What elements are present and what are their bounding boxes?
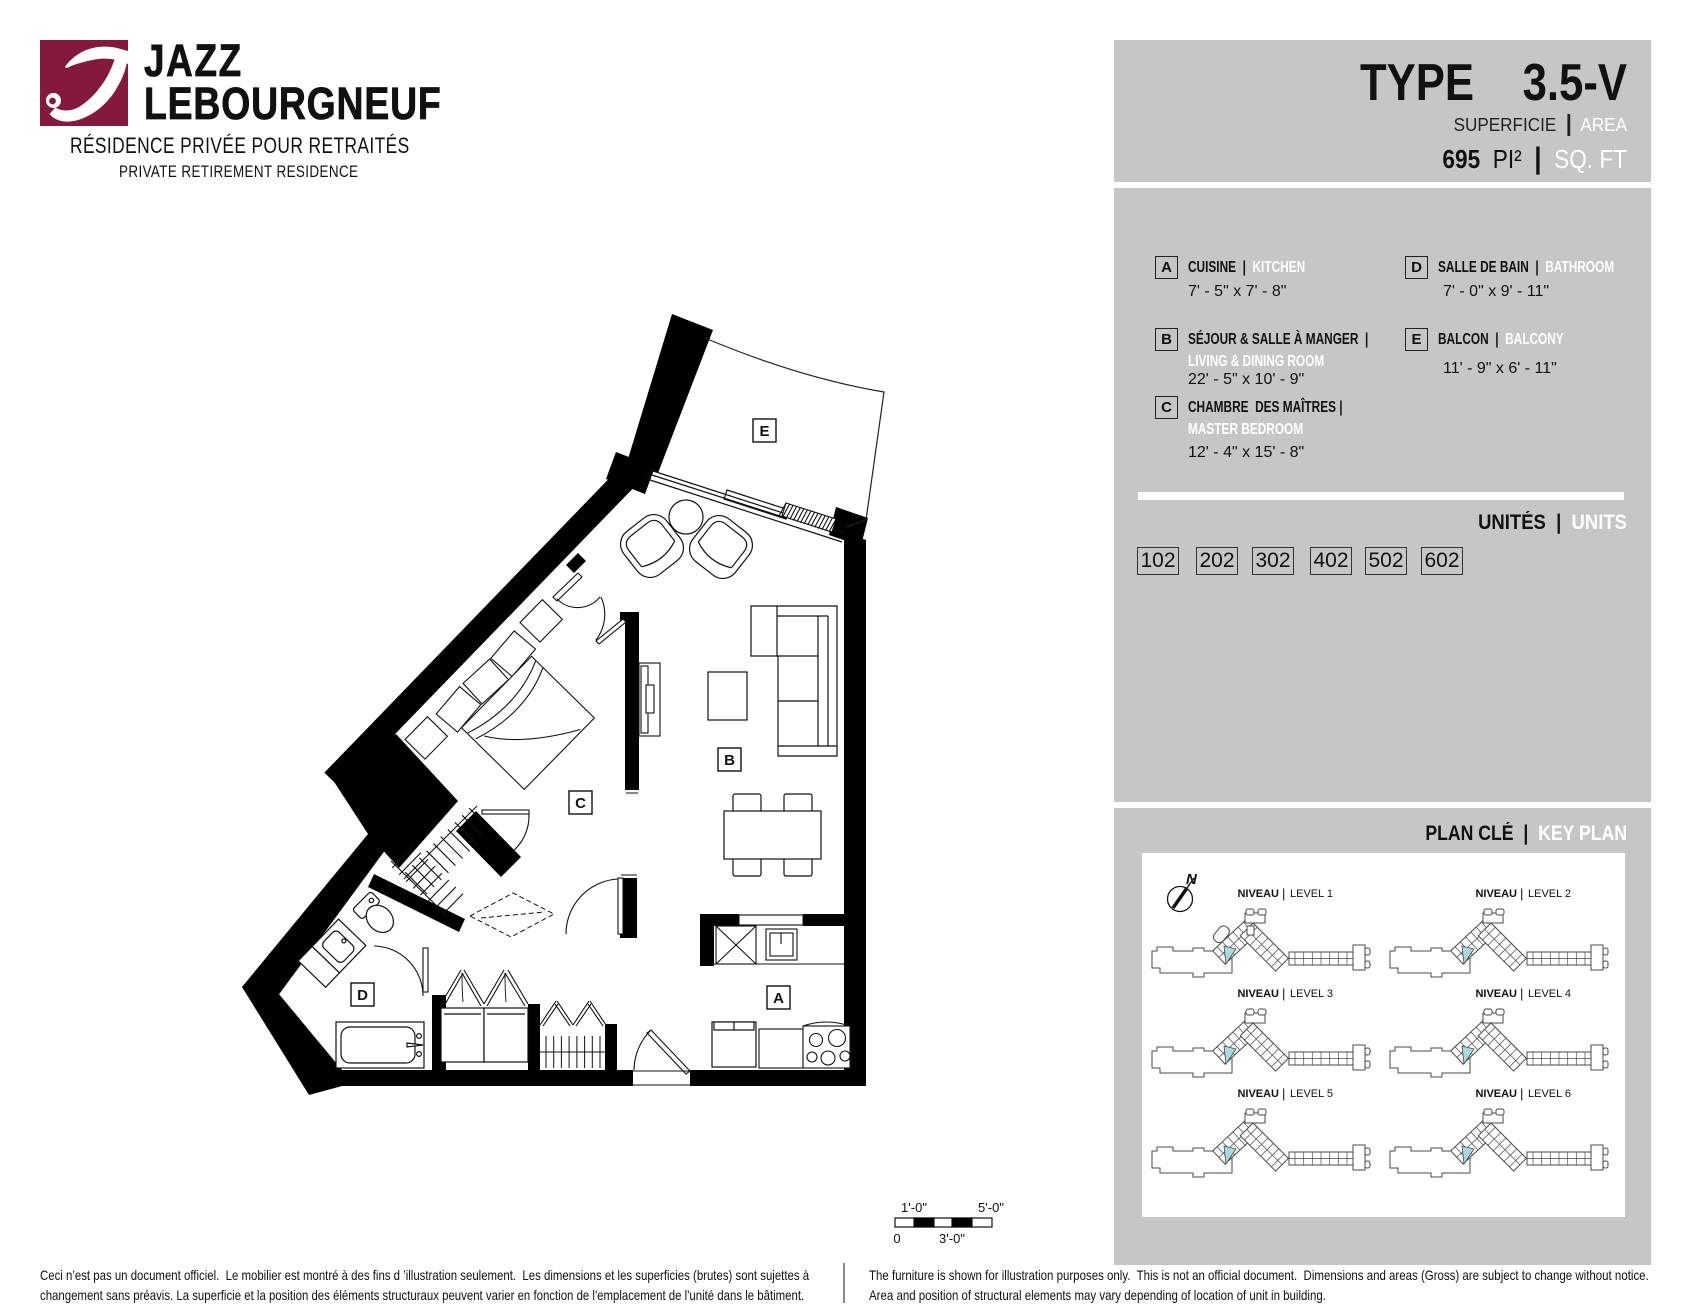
svg-text:5'-0": 5'-0" (978, 1200, 1004, 1215)
svg-text:NIVEAU: NIVEAU (1475, 988, 1517, 1000)
svg-text:|: | (1282, 1086, 1285, 1101)
svg-text:|: | (1520, 886, 1523, 901)
svg-text:NIVEAU: NIVEAU (1237, 988, 1279, 1000)
svg-text:LEVEL 3: LEVEL 3 (1290, 988, 1333, 1000)
svg-text:LEVEL 5: LEVEL 5 (1290, 1088, 1333, 1100)
svg-text:C: C (575, 795, 586, 812)
svg-text:|: | (1520, 986, 1523, 1001)
svg-text:1'-0": 1'-0" (901, 1200, 927, 1215)
svg-text:E: E (759, 423, 769, 440)
svg-text:A: A (773, 990, 784, 1007)
svg-text:NIVEAU: NIVEAU (1475, 1088, 1517, 1100)
svg-text:LEVEL 1: LEVEL 1 (1290, 888, 1333, 900)
svg-text:LEVEL 4: LEVEL 4 (1528, 988, 1571, 1000)
svg-text:|: | (1282, 986, 1285, 1001)
svg-text:N: N (1186, 871, 1198, 888)
svg-text:NIVEAU: NIVEAU (1475, 888, 1517, 900)
svg-text:B: B (724, 752, 735, 769)
svg-text:0: 0 (893, 1231, 900, 1246)
svg-text:|: | (1282, 886, 1285, 901)
svg-text:LEVEL 6: LEVEL 6 (1528, 1088, 1571, 1100)
svg-text:3'-0": 3'-0" (939, 1231, 965, 1246)
svg-text:NIVEAU: NIVEAU (1237, 888, 1279, 900)
svg-text:D: D (357, 987, 368, 1004)
svg-text:LEVEL 2: LEVEL 2 (1528, 888, 1571, 900)
svg-text:NIVEAU: NIVEAU (1237, 1088, 1279, 1100)
svg-text:|: | (1520, 1086, 1523, 1101)
